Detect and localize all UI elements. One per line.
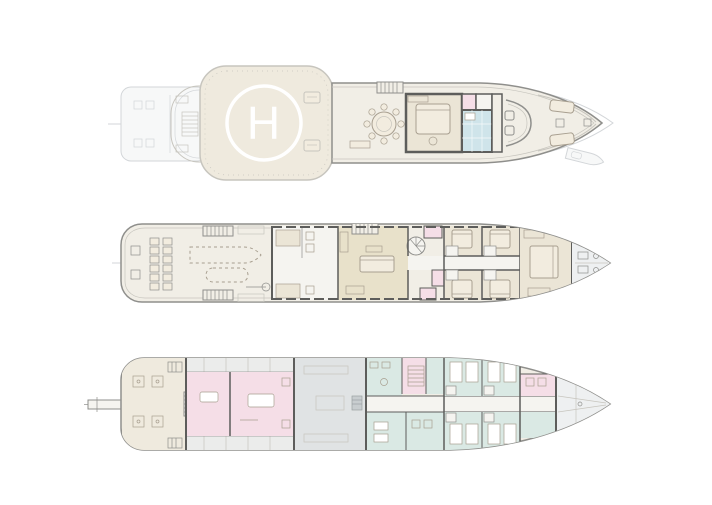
bathroom <box>446 246 458 256</box>
massage-table <box>200 392 218 402</box>
sink <box>465 113 475 120</box>
crew-corridor <box>366 396 556 412</box>
bathroom <box>484 413 494 422</box>
salon <box>338 222 408 300</box>
tender-boat <box>565 148 605 168</box>
helipad: H <box>200 66 333 180</box>
sun-pad <box>549 133 574 147</box>
bed <box>452 230 472 248</box>
helipad-marking: H <box>247 97 281 149</box>
gangway <box>84 397 122 412</box>
foredeck <box>572 226 618 304</box>
helm-chair <box>505 111 514 120</box>
sofa <box>416 104 450 134</box>
bunk <box>488 424 500 444</box>
engine-room <box>294 358 366 450</box>
helm-chair <box>505 126 514 135</box>
deck-plan-canvas: H <box>0 0 712 505</box>
vent-icon <box>304 92 320 103</box>
bathroom <box>446 270 458 280</box>
beach-club <box>122 358 186 450</box>
bathroom <box>484 270 496 280</box>
bathroom <box>484 386 494 395</box>
massage-table <box>248 394 274 407</box>
bunk <box>488 362 500 382</box>
closet-pink <box>462 94 476 110</box>
galley-lobby <box>272 226 338 300</box>
bed <box>530 246 558 278</box>
mess-table <box>374 422 388 430</box>
day-head <box>476 94 492 110</box>
bunk <box>504 424 516 444</box>
engine-stairs <box>352 396 362 410</box>
sideboard <box>350 141 370 148</box>
stairwell-pink <box>402 358 426 394</box>
sun-pad <box>549 100 574 114</box>
spa-rooms <box>186 372 294 436</box>
bunk <box>450 424 462 444</box>
deck-stairs <box>377 82 403 93</box>
bed <box>490 230 510 248</box>
mess-table <box>374 434 388 442</box>
sky-lounge <box>406 94 462 152</box>
bathroom <box>484 246 496 256</box>
bathroom-blue <box>462 94 492 152</box>
sofa <box>360 256 394 272</box>
bed <box>452 280 472 298</box>
lower-deck-plan <box>84 358 614 450</box>
bunk <box>466 362 478 382</box>
bunk <box>466 424 478 444</box>
vent-icon <box>304 140 320 151</box>
deck-plan-drawing: H <box>0 0 712 505</box>
bed <box>490 280 510 298</box>
bathroom <box>446 386 456 395</box>
bow-locker <box>556 358 614 450</box>
main-deck-plan <box>112 222 618 304</box>
master-cabin <box>520 226 572 300</box>
bunk <box>450 362 462 382</box>
sun-deck-plan: H <box>108 66 613 180</box>
bathroom <box>446 413 456 422</box>
